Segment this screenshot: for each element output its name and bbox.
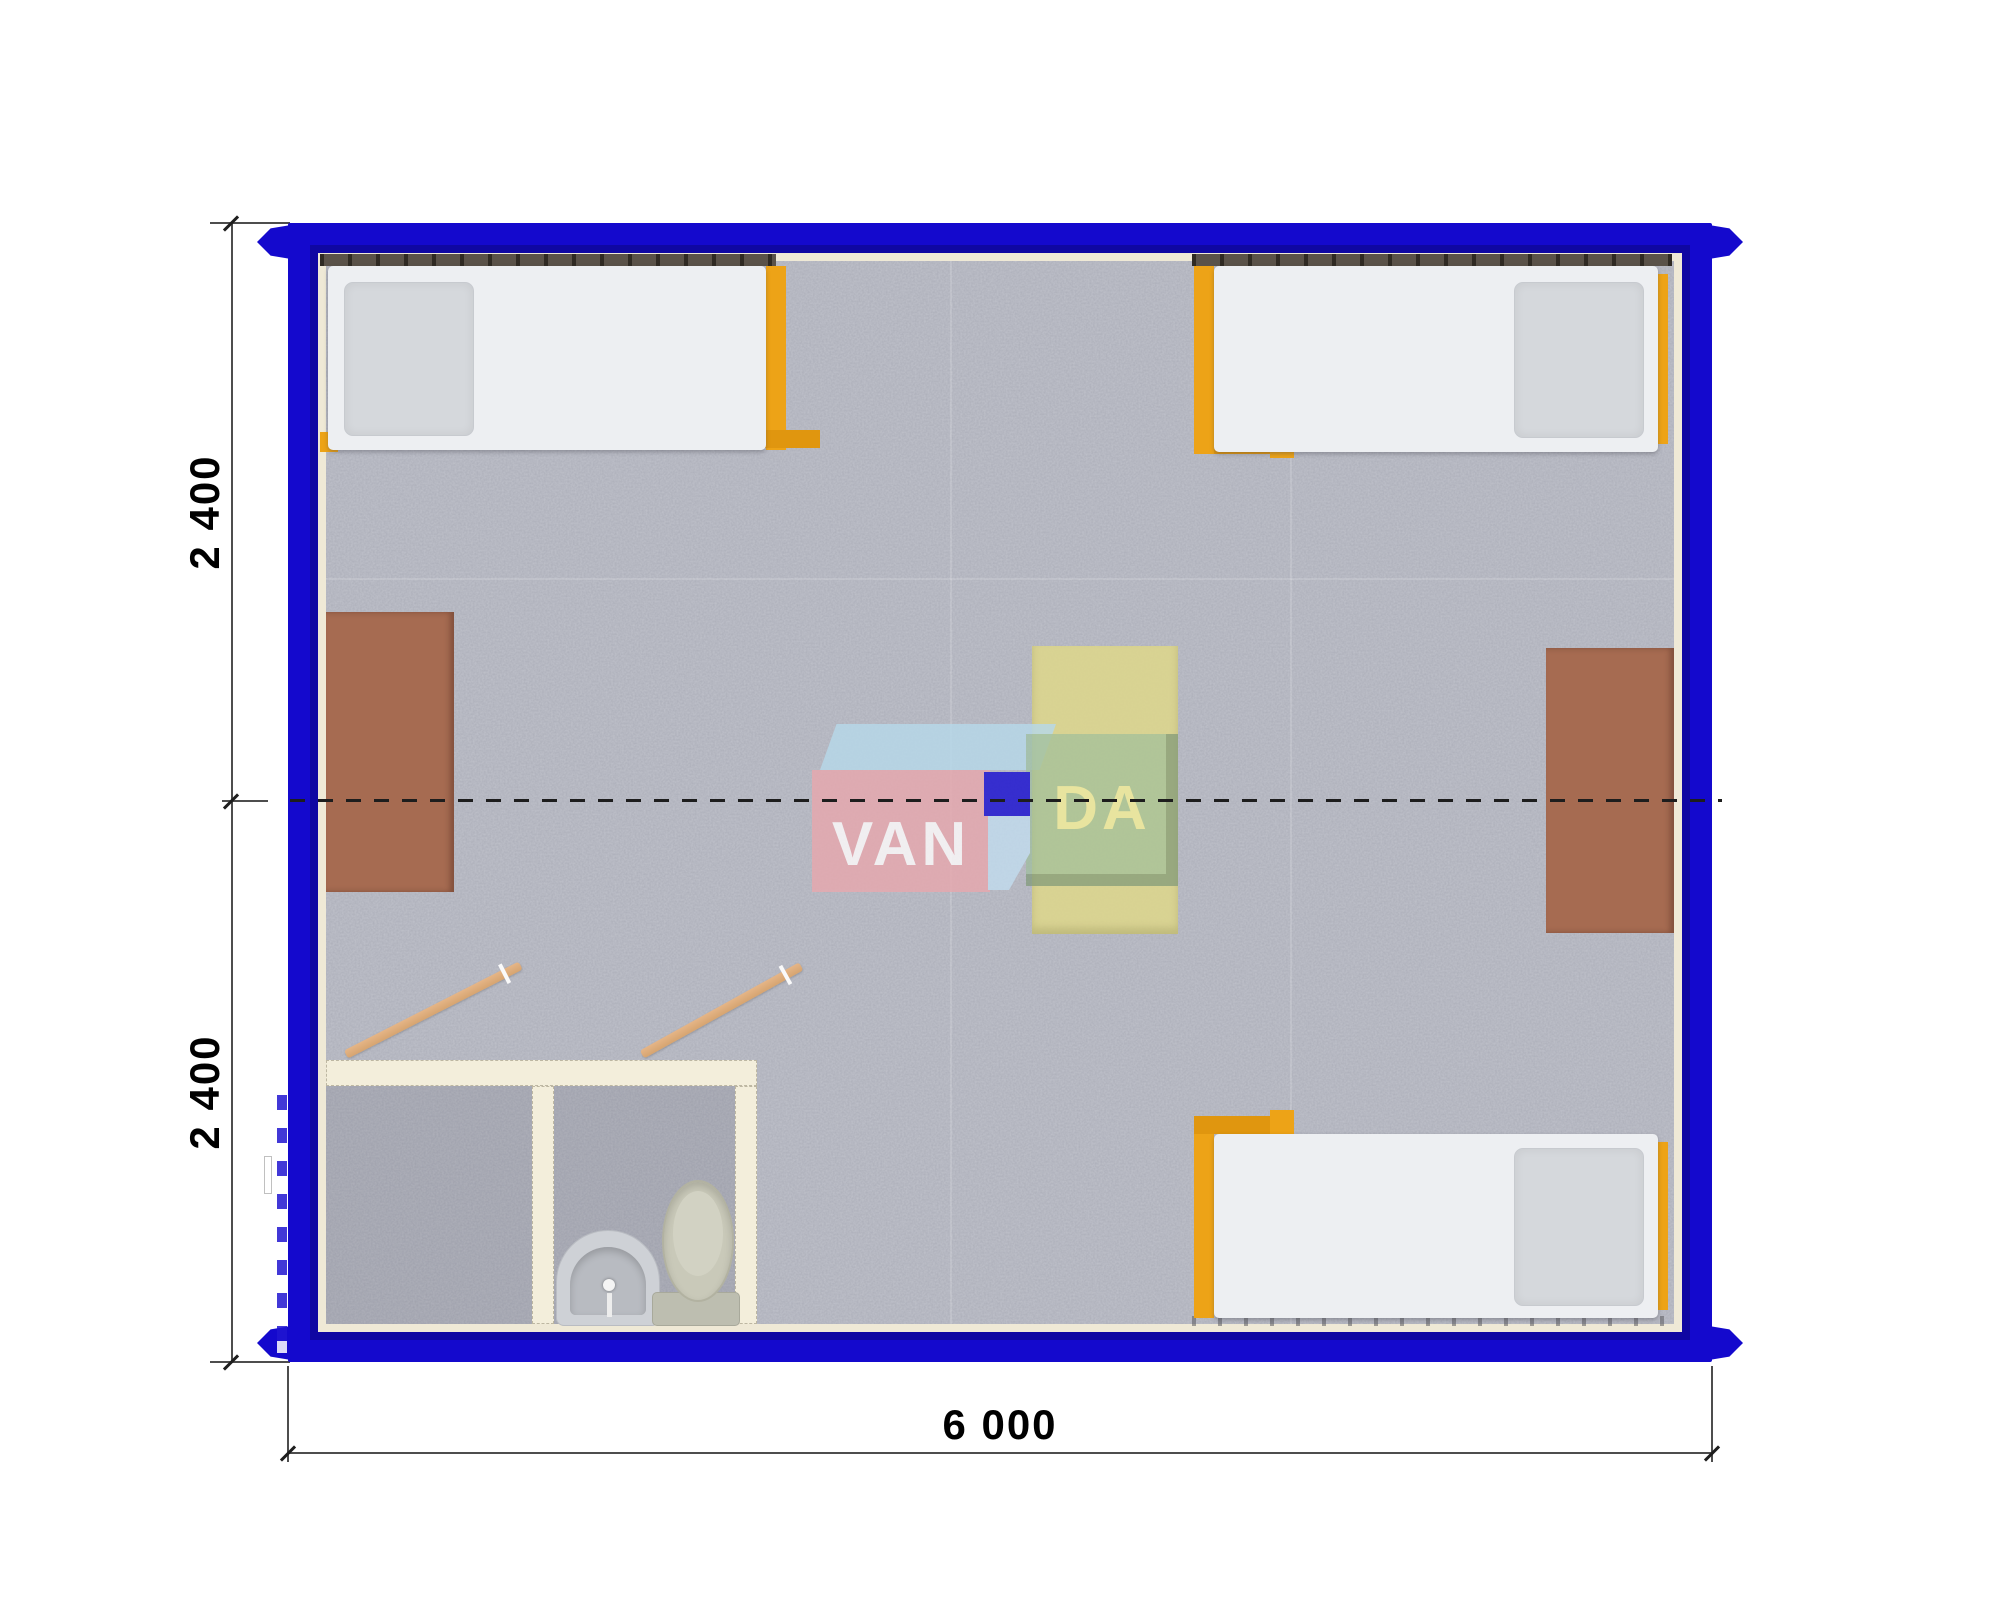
- bed-1-pillow: [344, 282, 474, 436]
- bed-2-frame-right: [1658, 274, 1668, 444]
- faucet: [603, 1279, 615, 1291]
- entrance-door-handle: [264, 1156, 272, 1194]
- logo-top-face: [820, 724, 1056, 770]
- dimension-label-height-bottom: 2 400: [179, 982, 231, 1202]
- window-strip: [320, 254, 776, 266]
- extension-line-top-left: [210, 222, 290, 224]
- corner-fitting-top-right: [1709, 225, 1743, 259]
- container-module: VAN DA: [288, 223, 1712, 1362]
- extension-line-bottom-left: [210, 1361, 290, 1363]
- wall-desk-left: [326, 612, 454, 892]
- sink: [556, 1230, 660, 1326]
- extension-line-bottom-end: [1711, 1366, 1713, 1462]
- floor-seam: [326, 578, 1674, 580]
- bed-2-frame-left: [1194, 266, 1214, 454]
- dimension-label-height-top: 2 400: [179, 402, 231, 622]
- bed-3-frame-left: [1194, 1134, 1214, 1318]
- corner-fitting-top-left: [257, 225, 291, 259]
- bed-3-frame-right: [1658, 1142, 1668, 1310]
- bed-2-pillow: [1514, 282, 1644, 438]
- left-dimension-line: [231, 223, 233, 1362]
- bed-1-frame-right: [766, 266, 786, 450]
- dimension-label-width: 6 000: [900, 1402, 1100, 1448]
- corner-fitting-bottom-right: [1709, 1326, 1743, 1360]
- entrance-door-dash-marking: [277, 1095, 287, 1353]
- bed-3-mattress: [1214, 1134, 1658, 1318]
- logo-right-block: DA: [1026, 734, 1178, 886]
- bed-2-mattress: [1214, 266, 1658, 452]
- bed-3-pillow: [1514, 1148, 1644, 1306]
- faucet-stem: [607, 1293, 612, 1317]
- center-axis-line: [290, 799, 1722, 802]
- window-strip: [1192, 254, 1672, 266]
- bed-3-frame-corner: [1270, 1110, 1294, 1136]
- bathroom-wall-right: [735, 1086, 757, 1324]
- wall-desk-right: [1546, 648, 1674, 933]
- extension-line-bottom-start: [287, 1366, 289, 1462]
- bed-1-mattress: [328, 266, 766, 450]
- logo-cube-icon: [984, 772, 1030, 816]
- bathroom-wall-top: [326, 1060, 757, 1086]
- bottom-dimension-line: [288, 1452, 1712, 1454]
- vanda-watermark: VAN DA: [812, 724, 1180, 894]
- logo-left-block: VAN: [812, 770, 990, 892]
- logo-chevron: [988, 816, 1030, 890]
- toilet: [662, 1180, 734, 1302]
- toilet-lid: [673, 1191, 723, 1276]
- bathroom-wall-divider: [532, 1086, 554, 1324]
